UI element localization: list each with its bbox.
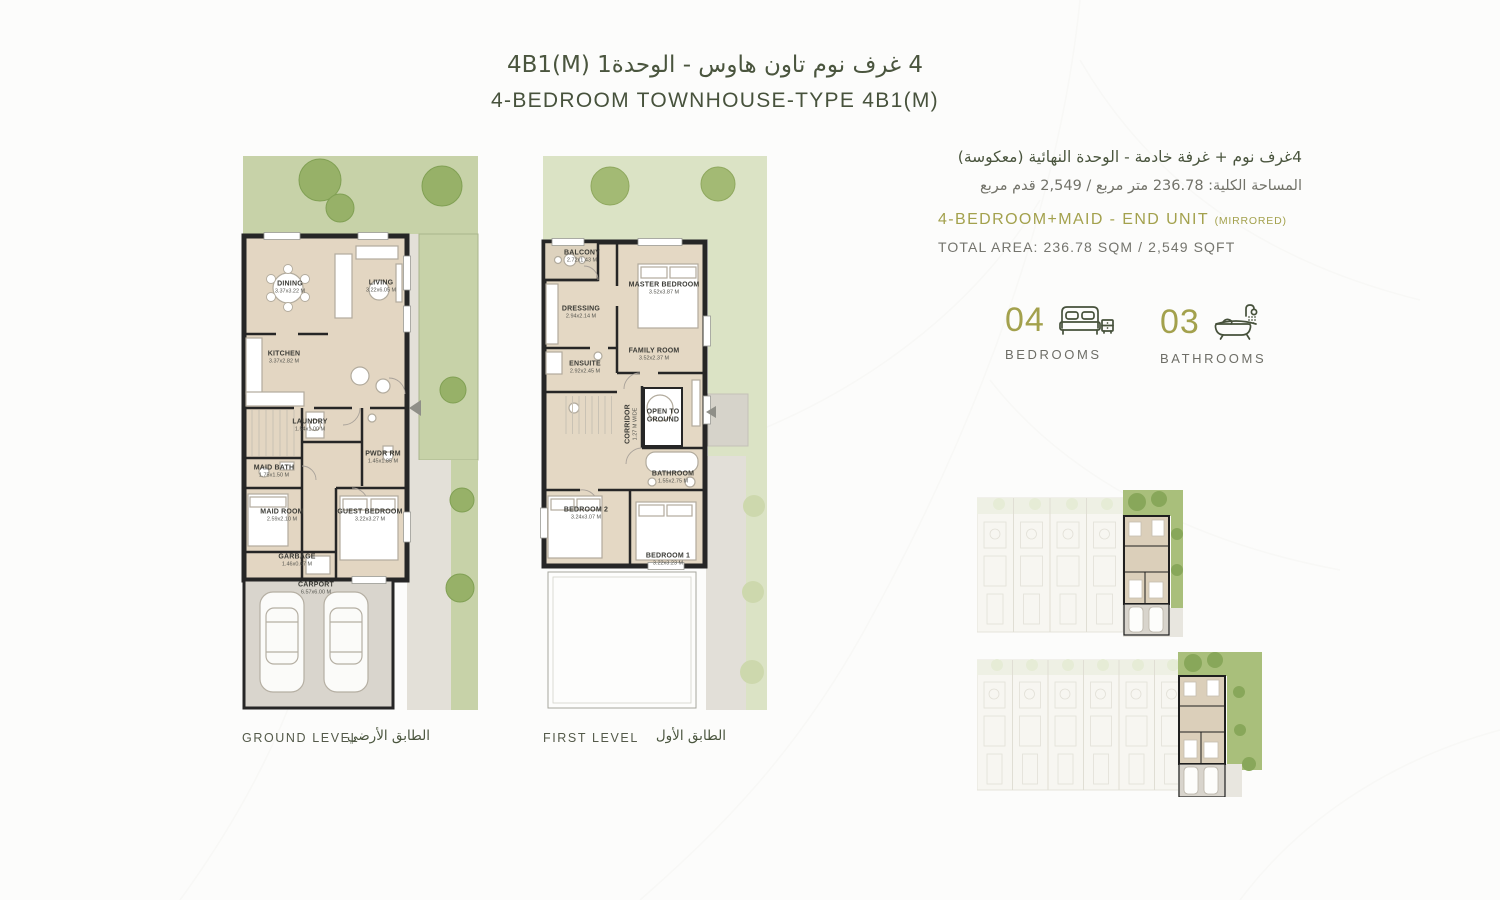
bedrooms-label: BEDROOMS: [1005, 347, 1116, 362]
unit-info-english-line2: TOTAL AREA: 236.78 SQM / 2,549 SQFT: [938, 239, 1302, 255]
bathrooms-label: BATHROOMS: [1160, 351, 1266, 366]
unit-type-text: 4-BEDROOM+MAID - END UNIT: [938, 211, 1209, 228]
ground-room-kitchen: KITCHEN3.37x2.82 M: [268, 351, 301, 366]
first-room-dressing: DRESSING2.94x2.14 M: [562, 306, 600, 321]
mirrored-note: (MIRRORED): [1215, 215, 1287, 227]
first-level-caption-ar: الطابق الأول: [626, 728, 726, 744]
ground-room-dining: DINING3.37x3.22 M: [275, 281, 305, 296]
unit-info-arabic-line1: 4غرف نوم + غرفة خادمة - الوحدة النهائية …: [938, 148, 1302, 166]
unit-info-english-line1: 4-BEDROOM+MAID - END UNIT (MIRRORED): [938, 211, 1302, 229]
page-title-arabic-text: 4 غرف نوم تاون هاوس - الوحدة1: [597, 52, 923, 78]
first-room-bathroom: BATHROOM1.55x2.75 M: [652, 471, 694, 486]
first-room-bedroom-2: BEDROOM 23.24x3.07 M: [564, 507, 608, 522]
first-level-caption-en: FIRST LEVEL: [543, 731, 639, 745]
bathrooms-count: 03: [1160, 303, 1200, 342]
first-room-corridor: CORRIDOR1.27 M WIDE: [625, 404, 640, 444]
ground-room-laundry: LAUNDRY1.54x1.00 M: [292, 419, 327, 434]
ground-room-maid-bath: MAID BATH1.75x1.50 M: [254, 465, 295, 480]
ground-room-carport: CARPORT6.57x6.00 M: [298, 582, 334, 597]
unit-info-arabic-line2: المساحة الكلية: 236.78 متر مربع / 2,549 …: [938, 178, 1302, 194]
site-plan-thumbnail-first: [977, 652, 1262, 797]
first-room-open-to-ground: OPEN TO GROUND: [642, 409, 684, 426]
bathtub-icon: [1213, 300, 1259, 344]
ground-room-maid-room: MAID ROOM2.59x2.10 M: [260, 509, 303, 524]
ground-room-guest-bedroom: GUEST BEDROOM3.22x3.27 M: [337, 509, 402, 524]
brochure-page: 4 غرف نوم تاون هاوس - الوحدة1 4B1(M) 4-B…: [0, 0, 1500, 900]
first-room-family-room: FAMILY ROOM3.52x2.37 M: [629, 348, 680, 363]
ground-floor-drawing: [240, 156, 480, 721]
bedrooms-stat: 04 BEDROOMS: [1005, 300, 1116, 362]
first-room-master-bedroom: MASTER BEDROOM3.52x3.87 M: [629, 282, 700, 297]
unit-info-block: 4غرف نوم + غرفة خادمة - الوحدة النهائية …: [938, 148, 1302, 255]
first-room-bedroom-1: BEDROOM 13.22x3.23 M: [646, 553, 690, 568]
first-floor-drawing: [540, 156, 770, 721]
bed-icon: [1058, 300, 1116, 340]
ground-floor-plan: DINING3.37x3.22 M LIVING3.22x6.05 M KITC…: [240, 156, 480, 721]
page-title-unit-code: 4B1(M): [507, 52, 590, 78]
page-header: 4 غرف نوم تاون هاوس - الوحدة1 4B1(M) 4-B…: [390, 52, 1040, 113]
ground-room-powder-room: PWDR RM1.45x1.85 M: [365, 451, 401, 466]
ground-room-garbage: GARBAGE1.46x0.67 M: [278, 554, 315, 569]
first-room-ensuite: ENSUITE2.92x2.45 M: [569, 361, 601, 376]
first-floor-plan: BALCONY2.72x1.43 M MASTER BEDROOM3.52x3.…: [540, 156, 770, 721]
first-room-balcony: BALCONY2.72x1.43 M: [564, 250, 600, 265]
page-title-arabic: 4 غرف نوم تاون هاوس - الوحدة1 4B1(M): [390, 52, 1040, 78]
ground-level-caption-ar: الطابق الأرضي: [330, 728, 430, 744]
page-title-english: 4-BEDROOM TOWNHOUSE-TYPE 4B1(M): [390, 89, 1040, 113]
ground-room-living: LIVING3.22x6.05 M: [366, 280, 396, 295]
bathrooms-stat: 03 BATHROOMS: [1160, 300, 1266, 366]
site-plan-thumbnail-ground: [977, 490, 1183, 637]
bedrooms-count: 04: [1005, 301, 1045, 340]
